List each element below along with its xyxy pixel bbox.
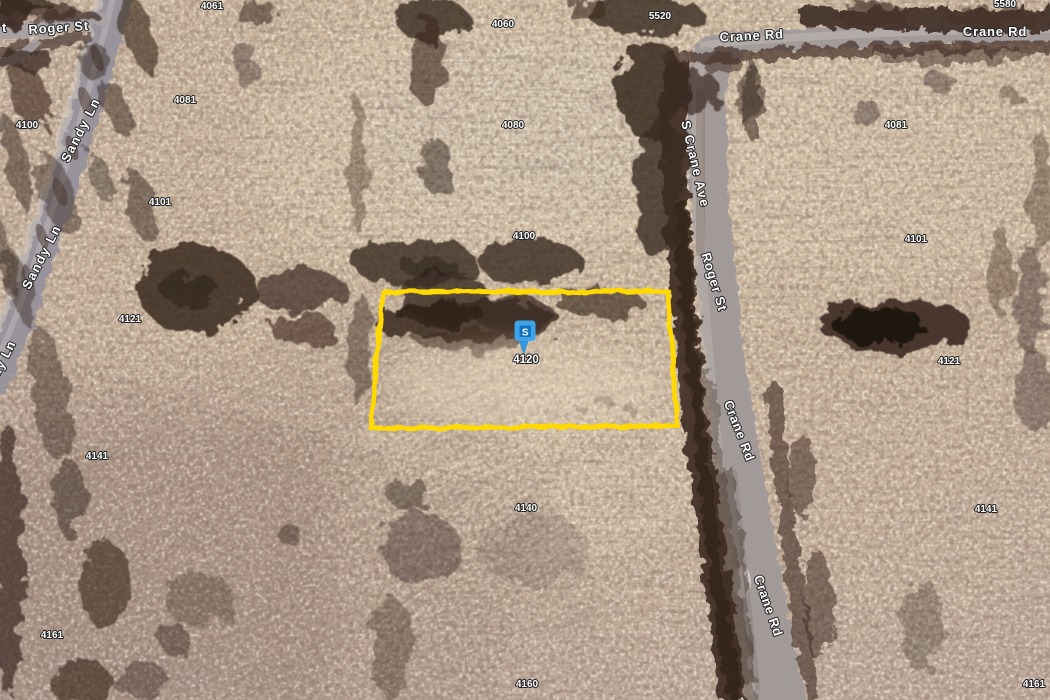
svg-text:4140: 4140 [515,503,538,514]
svg-text:Crane Rd: Crane Rd [963,24,1027,39]
svg-text:4161: 4161 [41,630,64,641]
svg-text:4081: 4081 [885,120,908,131]
svg-text:4101: 4101 [905,234,928,245]
svg-text:4100: 4100 [16,120,39,131]
svg-text:4141: 4141 [86,451,109,462]
svg-text:4160: 4160 [516,679,539,690]
svg-text:5580: 5580 [994,0,1017,10]
svg-text:4120: 4120 [513,354,539,366]
svg-text:4101: 4101 [149,197,172,208]
svg-text:4141: 4141 [975,504,998,515]
svg-text:4080: 4080 [502,120,525,131]
svg-text:4121: 4121 [119,314,142,325]
svg-text:t: t [2,20,7,35]
svg-text:4121: 4121 [938,356,961,367]
svg-text:4100: 4100 [513,231,536,242]
svg-text:4061: 4061 [201,1,224,12]
svg-text:4161: 4161 [1023,679,1046,690]
svg-text:4081: 4081 [174,95,197,106]
svg-text:S: S [522,327,529,338]
svg-text:5520: 5520 [649,11,672,22]
svg-text:4060: 4060 [492,19,515,30]
